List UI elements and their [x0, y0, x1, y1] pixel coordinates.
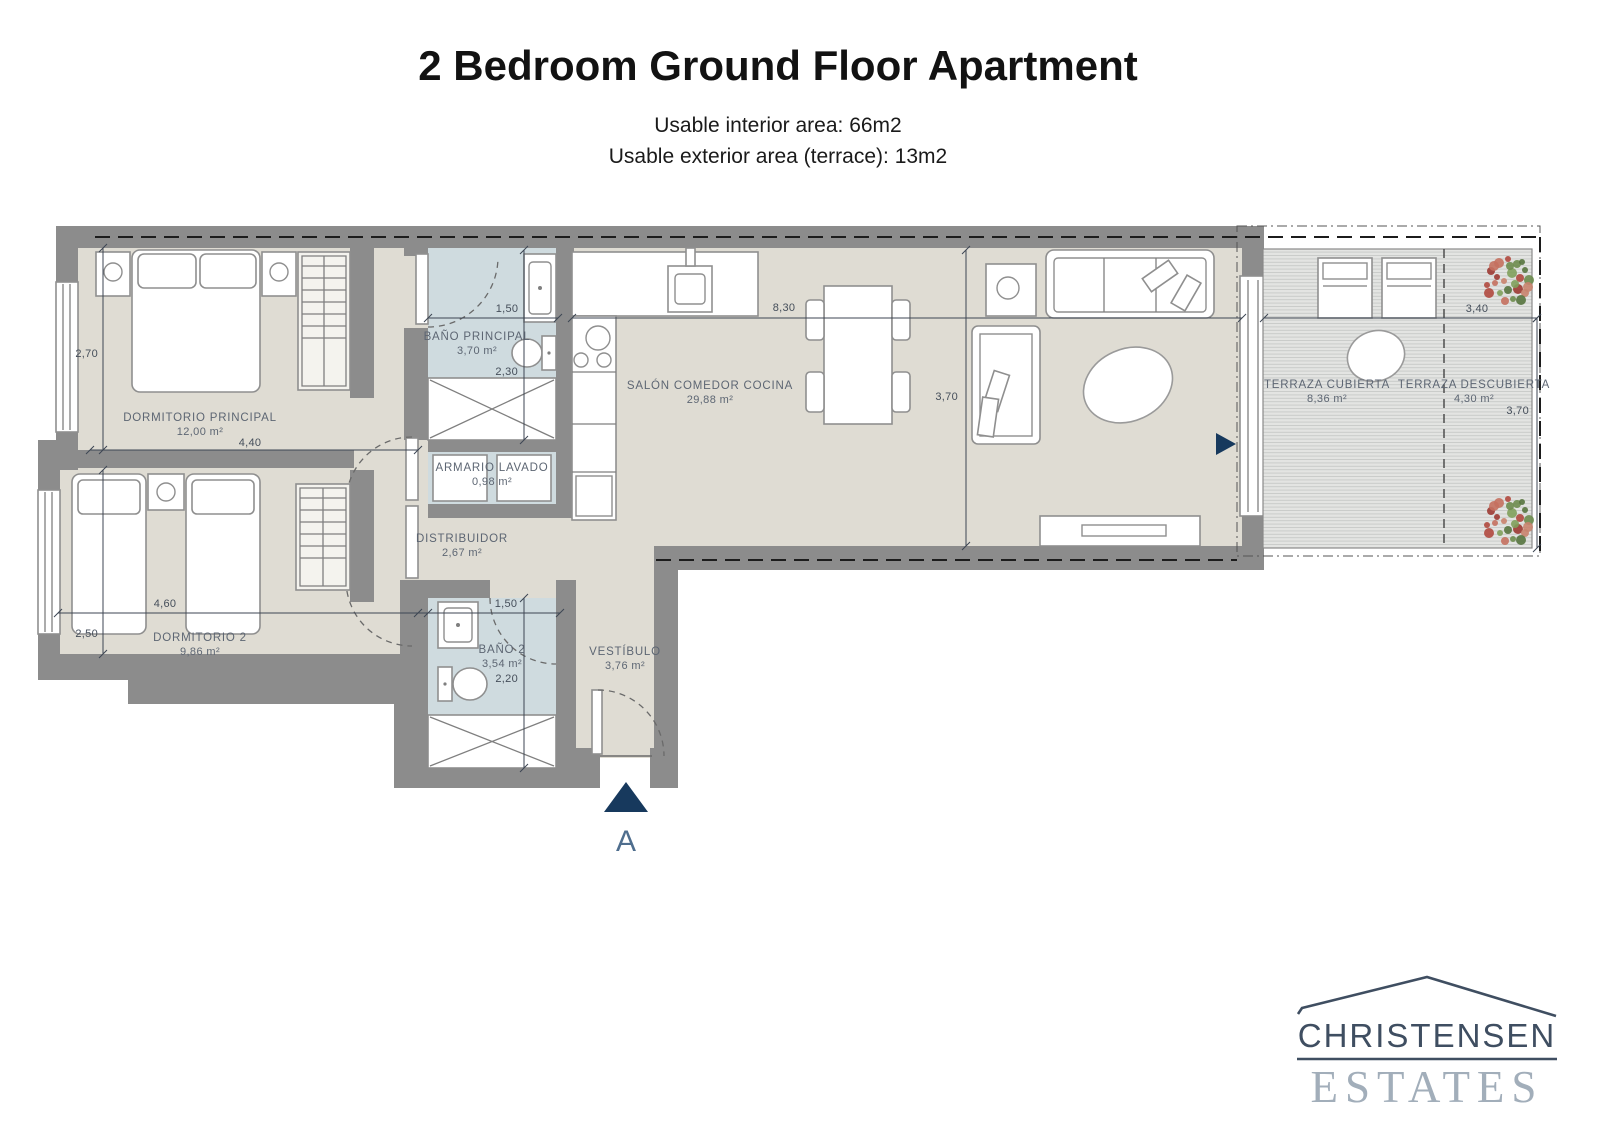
nightstand-left: [96, 252, 130, 296]
dim-terraza-height: 3,70: [1506, 405, 1529, 417]
furniture-dorm1: [96, 250, 350, 392]
page-title: 2 Bedroom Ground Floor Apartment: [418, 42, 1137, 89]
sun-lounger-1: [1318, 258, 1372, 318]
entrance-label: A: [616, 825, 636, 858]
dim-dorm1-width: 4,40: [239, 437, 262, 449]
kitchen-counter-top: [572, 252, 758, 316]
wall-corner-chunk: [394, 654, 428, 788]
floorplan-page: 2 Bedroom Ground Floor Apartment Usable …: [0, 0, 1600, 1131]
dim-salon-width: 8,30: [773, 302, 796, 314]
wall-dorm2-south-step: [128, 680, 394, 704]
wall-dorm2-south: [38, 654, 408, 680]
logo-roof-icon: [1298, 977, 1556, 1016]
wall-bano1-west-top: [404, 226, 428, 256]
door-leaf-dorm1: [406, 438, 418, 500]
area-terraza-cubierta: 8,36 m²: [1307, 393, 1347, 405]
logo-tagline: ESTATES: [1311, 1062, 1544, 1112]
floorplan-canvas: 2 Bedroom Ground Floor Apartment Usable …: [0, 0, 1600, 1131]
logo-name: CHRISTENSEN: [1298, 1017, 1557, 1054]
wall-bano1-south: [428, 440, 574, 452]
label-dormitorio-principal: DORMITORIO PRINCIPAL: [123, 412, 277, 424]
tv-console: [1040, 516, 1200, 546]
dim-dorm2-height: 2,50: [75, 628, 98, 640]
pillow-2: [200, 254, 256, 288]
dim-bano2-width: 1,50: [495, 598, 518, 610]
subtitle-exterior-area: Usable exterior area (terrace): 13m2: [609, 145, 947, 168]
floor-door-pocket: [354, 450, 404, 468]
area-vestibulo: 3,76 m²: [605, 660, 645, 672]
dim-dorm2-width: 4,60: [154, 598, 177, 610]
label-salon: SALÓN COMEDOR COCINA: [627, 379, 793, 392]
area-distribuidor: 2,67 m²: [442, 547, 482, 559]
window-dorm2: [38, 490, 60, 634]
door-leaf-entrance: [592, 690, 602, 754]
dim-bano2-height: 2,20: [495, 673, 518, 685]
wall-salon-south: [654, 546, 1264, 570]
side-table: [986, 264, 1036, 316]
nightstand-right: [262, 252, 296, 296]
door-leaf-bano1: [416, 254, 428, 324]
wall-armario-south: [428, 504, 574, 518]
dim-terraza-width: 3,40: [1466, 303, 1489, 315]
bano2-toilet-button: [443, 682, 446, 685]
bano1-sink-drain: [538, 286, 542, 290]
label-armario-lavado: ARMARIO LAVADO: [435, 462, 548, 474]
dim-dorm1-height: 2,70: [75, 348, 98, 360]
bano2-toilet-bowl: [453, 668, 487, 700]
area-bano-2: 3,54 m²: [482, 658, 522, 670]
header: 2 Bedroom Ground Floor Apartment Usable …: [418, 42, 1137, 168]
area-dormitorio-principal: 12,00 m²: [177, 426, 224, 438]
pillow-bed-2: [192, 480, 254, 514]
chair-3: [892, 300, 910, 340]
pillow-bed-1: [78, 480, 140, 514]
area-armario-lavado: 0,98 m²: [472, 476, 512, 488]
label-dormitorio-2: DORMITORIO 2: [153, 632, 247, 644]
kitchen-faucet: [686, 248, 695, 266]
dining-table: [824, 286, 892, 424]
wall-wardrobe2-nook: [350, 470, 374, 602]
label-bano-principal: BAÑO PRINCIPAL: [424, 330, 531, 343]
area-terraza-descubierta: 4,30 m²: [1454, 393, 1494, 405]
bano1-toilet-bowl: [512, 339, 542, 367]
area-bano-principal: 3,70 m²: [457, 345, 497, 357]
entrance-arrow-icon: [604, 782, 648, 812]
bano2-sink-drain: [456, 623, 460, 627]
label-terraza-cubierta: TERRAZA CUBIERTA: [1264, 379, 1390, 391]
wall-dorm-divider: [58, 450, 354, 468]
dim-bano1-width: 1,50: [496, 303, 519, 315]
wall-wardrobe1-nook: [350, 248, 374, 398]
nightstand-dorm2: [148, 474, 184, 510]
subtitle-interior-area: Usable interior area: 66m2: [654, 114, 901, 137]
brand-logo: CHRISTENSEN ESTATES: [1297, 977, 1557, 1112]
sliding-door-terrace: [1240, 276, 1266, 516]
label-terraza-descubierta: TERRAZA DESCUBIERTA: [1398, 379, 1550, 391]
area-dormitorio-2: 9,86 m²: [180, 646, 220, 658]
kitchen-counter-left: [572, 316, 616, 520]
pillow-1: [138, 254, 196, 288]
entrance-marker: A: [604, 782, 648, 858]
chair-1: [806, 300, 824, 340]
dim-bano1-height: 2,30: [495, 366, 518, 378]
chair-2: [806, 372, 824, 412]
area-salon: 29,88 m²: [687, 394, 734, 406]
label-bano-2: BAÑO 2: [479, 643, 526, 656]
label-distribuidor: DISTRIBUIDOR: [416, 533, 508, 545]
wall-bano1-west-bottom: [404, 328, 428, 440]
dim-salon-height: 3,70: [935, 391, 958, 403]
sun-lounger-2: [1382, 258, 1436, 318]
chair-4: [892, 372, 910, 412]
bano1-toilet-button: [547, 351, 550, 354]
label-vestibulo: VESTÍBULO: [589, 645, 661, 658]
